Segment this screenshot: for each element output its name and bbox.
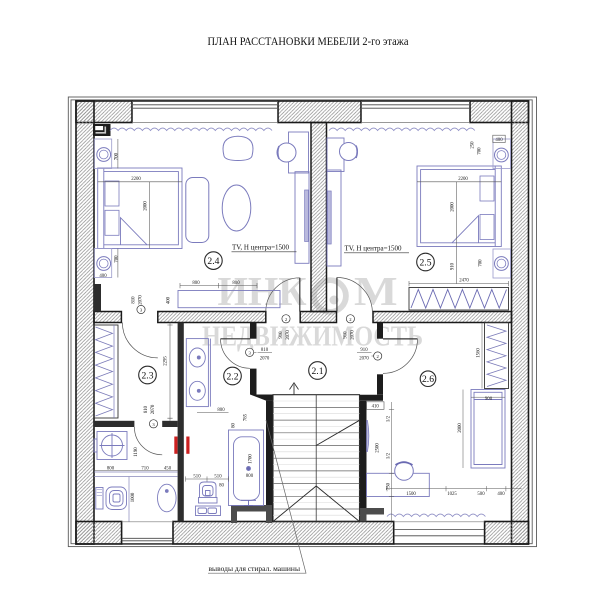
svg-text:1500: 1500 <box>406 492 416 497</box>
svg-text:1025: 1025 <box>447 492 457 497</box>
svg-text:1700: 1700 <box>249 454 254 464</box>
svg-text:2.1: 2.1 <box>312 366 324 377</box>
svg-text:TV, Н центра=1500: TV, Н центра=1500 <box>345 245 403 253</box>
svg-text:2070: 2070 <box>351 330 356 340</box>
svg-text:700: 700 <box>478 147 483 155</box>
svg-text:810: 810 <box>261 348 269 353</box>
svg-text:2.4: 2.4 <box>207 256 219 267</box>
svg-text:80: 80 <box>232 423 237 428</box>
svg-text:2.3: 2.3 <box>142 370 154 381</box>
svg-text:785: 785 <box>244 413 249 421</box>
svg-text:М: М <box>354 268 398 314</box>
svg-text:700: 700 <box>115 255 120 263</box>
svg-text:500: 500 <box>477 492 485 497</box>
svg-text:510: 510 <box>193 475 201 480</box>
svg-text:250: 250 <box>471 141 476 149</box>
svg-text:810: 810 <box>132 296 137 304</box>
svg-text:TV, Н центра=1500: TV, Н центра=1500 <box>232 244 290 252</box>
svg-text:450: 450 <box>164 466 172 471</box>
svg-text:НЕДВИЖИМОСТЬ: НЕДВИЖИМОСТЬ <box>202 321 423 353</box>
svg-text:800: 800 <box>246 474 254 479</box>
svg-text:1190: 1190 <box>134 447 139 457</box>
svg-text:800: 800 <box>192 281 200 286</box>
svg-text:2000: 2000 <box>458 423 463 433</box>
svg-text:810: 810 <box>144 405 149 413</box>
svg-text:1000: 1000 <box>131 492 136 502</box>
svg-text:700: 700 <box>115 152 120 160</box>
svg-text:2070: 2070 <box>139 295 144 305</box>
svg-text:2200: 2200 <box>131 177 141 182</box>
svg-text:510: 510 <box>214 475 222 480</box>
svg-text:выводы для стирал. машины: выводы для стирал. машины <box>209 564 301 573</box>
svg-text:2.2: 2.2 <box>227 371 239 382</box>
svg-text:2295: 2295 <box>164 356 169 366</box>
svg-text:ИНК: ИНК <box>218 268 307 314</box>
svg-text:2070: 2070 <box>260 356 270 361</box>
svg-text:2000: 2000 <box>451 202 456 212</box>
svg-text:910: 910 <box>279 331 284 339</box>
svg-text:1560: 1560 <box>477 348 482 358</box>
svg-text:800: 800 <box>232 281 240 286</box>
svg-text:910: 910 <box>360 348 368 353</box>
svg-text:2500: 2500 <box>376 443 381 453</box>
svg-text:800: 800 <box>107 466 115 471</box>
svg-text:2000: 2000 <box>144 201 149 211</box>
svg-text:ПЛАН РАССТАНОВКИ МЕБЕЛИ 2-г: ПЛАН РАССТАНОВКИ МЕБЕЛИ 2-го этажа <box>208 36 409 48</box>
svg-text:2070: 2070 <box>151 404 156 414</box>
svg-text:910: 910 <box>451 262 456 270</box>
svg-text:800: 800 <box>217 408 225 413</box>
svg-text:2.6: 2.6 <box>422 374 434 385</box>
svg-text:2.5: 2.5 <box>420 257 432 268</box>
svg-text:700: 700 <box>479 259 484 267</box>
svg-text:2070: 2070 <box>359 356 369 361</box>
svg-text:2470: 2470 <box>459 279 469 284</box>
svg-text:710: 710 <box>141 466 149 471</box>
svg-text:400: 400 <box>167 296 172 304</box>
svg-text:1/2: 1/2 <box>387 452 392 459</box>
svg-text:1/2: 1/2 <box>387 415 392 422</box>
svg-text:400: 400 <box>495 138 503 143</box>
svg-text:410: 410 <box>372 405 380 410</box>
svg-text:400: 400 <box>99 274 107 279</box>
svg-text:2070: 2070 <box>286 330 291 340</box>
svg-text:900: 900 <box>485 397 493 402</box>
svg-text:910: 910 <box>344 331 349 339</box>
svg-text:400: 400 <box>497 492 505 497</box>
svg-text:80: 80 <box>219 483 224 488</box>
svg-text:2200: 2200 <box>458 177 468 182</box>
